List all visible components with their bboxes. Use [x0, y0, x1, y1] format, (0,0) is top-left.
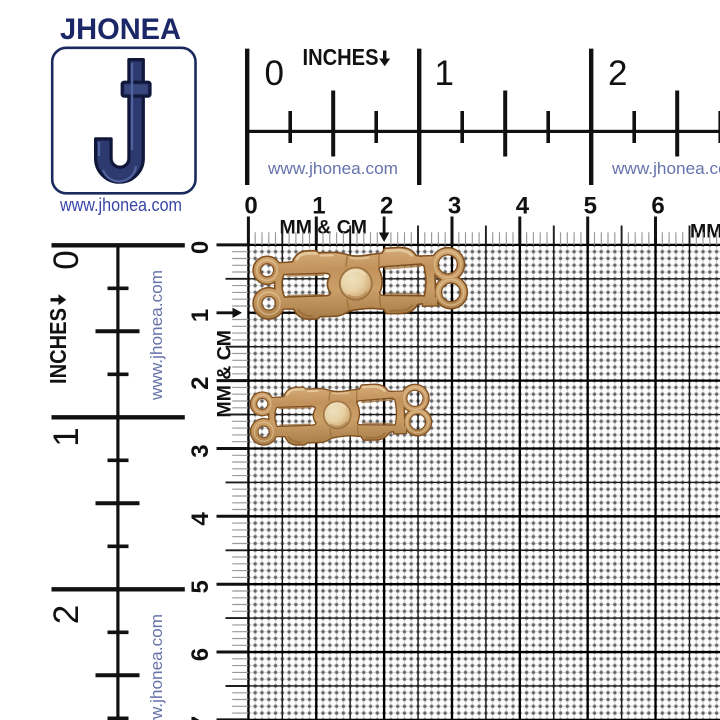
svg-text:www.jhonea.com: www.jhonea.com: [148, 270, 166, 401]
svg-text:INCHES: INCHES: [303, 44, 379, 70]
svg-text:0: 0: [264, 54, 283, 93]
svg-text:2: 2: [187, 377, 214, 390]
svg-text:MM & C: MM & C: [690, 221, 720, 243]
svg-text:4: 4: [516, 193, 530, 220]
svg-text:0: 0: [187, 241, 214, 254]
svg-text:1: 1: [434, 54, 453, 93]
svg-text:www.jhonea.com: www.jhonea.com: [59, 195, 182, 215]
svg-text:1: 1: [312, 193, 325, 220]
svg-text:4: 4: [187, 512, 214, 526]
svg-text:5: 5: [584, 193, 597, 220]
svg-text:www.jhonea.com: www.jhonea.com: [148, 614, 166, 720]
svg-text:www.jhonea.com: www.jhonea.com: [267, 160, 398, 178]
svg-text:JHONEA: JHONEA: [60, 13, 181, 46]
svg-text:2: 2: [47, 605, 86, 624]
svg-text:3: 3: [448, 193, 461, 220]
svg-text:2: 2: [380, 193, 393, 220]
svg-text:6: 6: [187, 648, 214, 661]
svg-text:INCHES: INCHES: [45, 308, 71, 384]
svg-text:6: 6: [651, 193, 664, 220]
svg-text:1: 1: [187, 309, 214, 322]
svg-text:7: 7: [187, 716, 214, 720]
svg-text:www.jhonea.com: www.jhonea.com: [611, 160, 720, 178]
svg-text:1: 1: [47, 427, 86, 446]
svg-text:5: 5: [187, 580, 214, 593]
svg-text:0: 0: [47, 250, 86, 269]
svg-text:3: 3: [187, 444, 214, 457]
svg-text:0: 0: [244, 193, 257, 220]
svg-text:2: 2: [608, 54, 627, 93]
